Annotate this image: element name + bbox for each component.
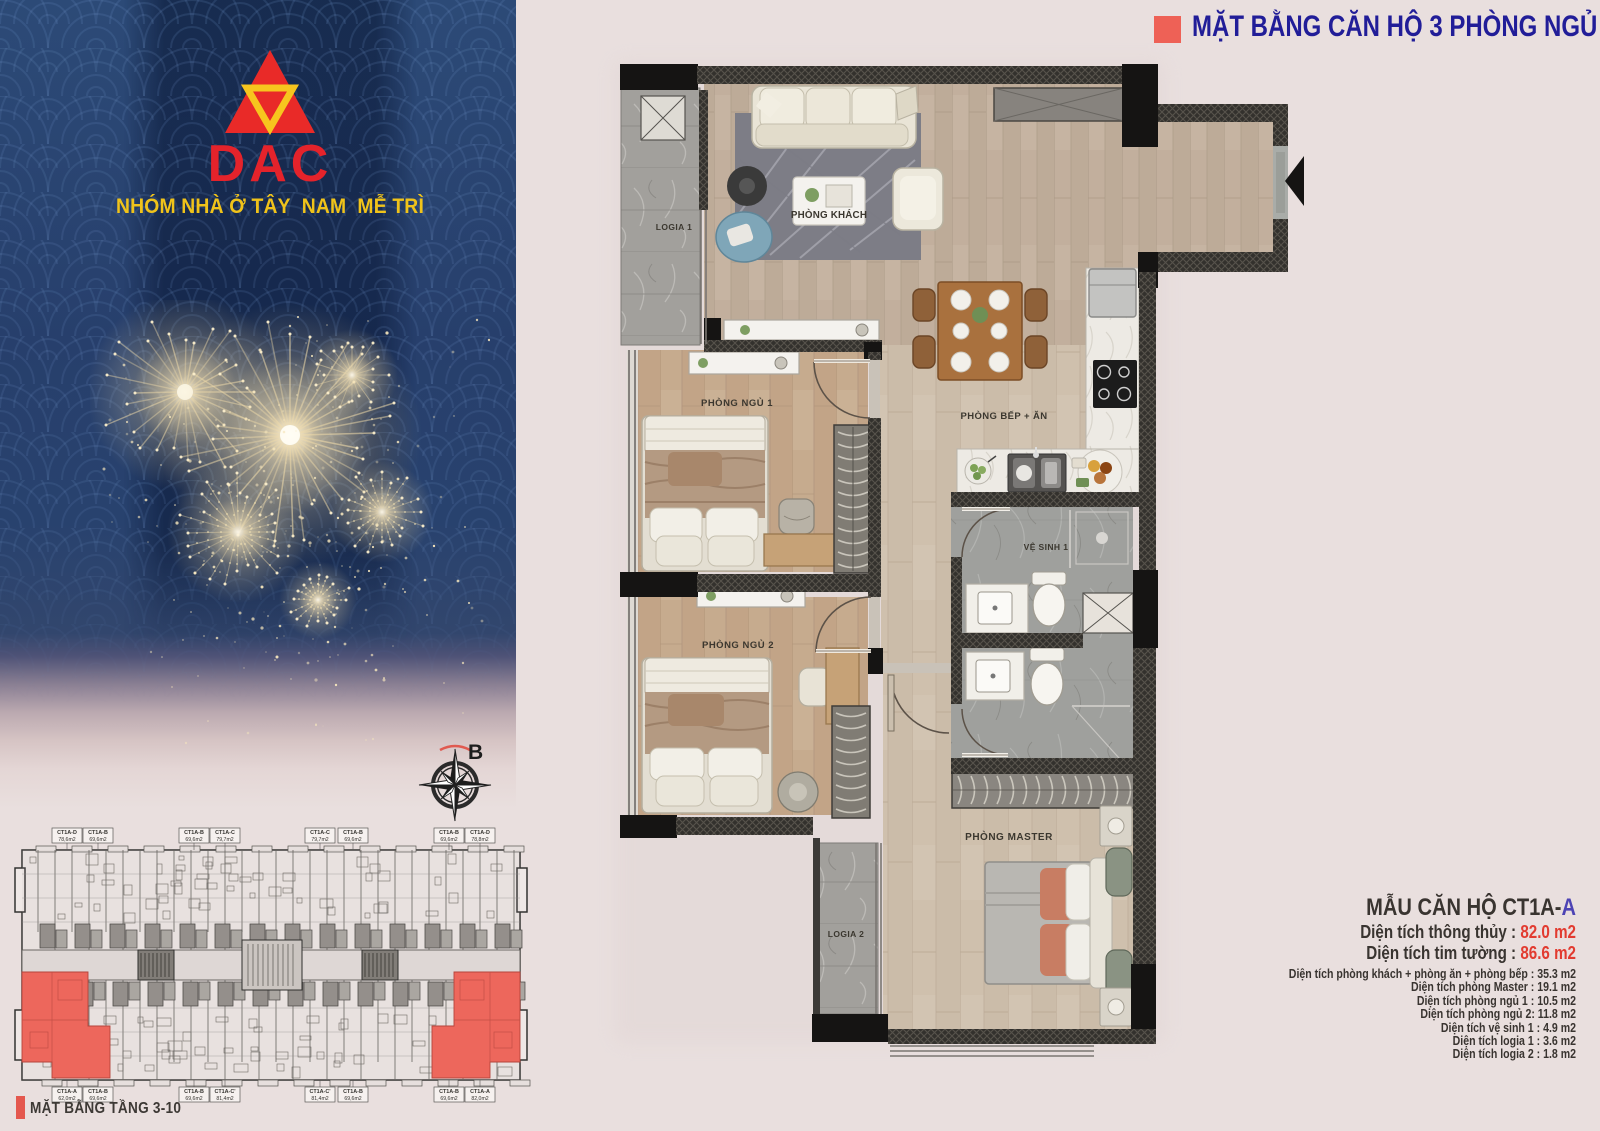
- svg-text:LOGIA 2: LOGIA 2: [828, 929, 865, 939]
- svg-text:PHÒNG MASTER: PHÒNG MASTER: [965, 830, 1053, 843]
- svg-text:PHÒNG KHÁCH: PHÒNG KHÁCH: [791, 209, 867, 221]
- svg-text:VỆ SINH 1: VỆ SINH 1: [1024, 541, 1069, 552]
- svg-text:PHÒNG BẾP + ĂN: PHÒNG BẾP + ĂN: [961, 410, 1048, 422]
- svg-text:PHÒNG NGỦ 2: PHÒNG NGỦ 2: [702, 639, 774, 651]
- svg-text:PHÒNG NGỦ 1: PHÒNG NGỦ 1: [701, 397, 773, 409]
- svg-text:LOGIA 1: LOGIA 1: [656, 222, 693, 232]
